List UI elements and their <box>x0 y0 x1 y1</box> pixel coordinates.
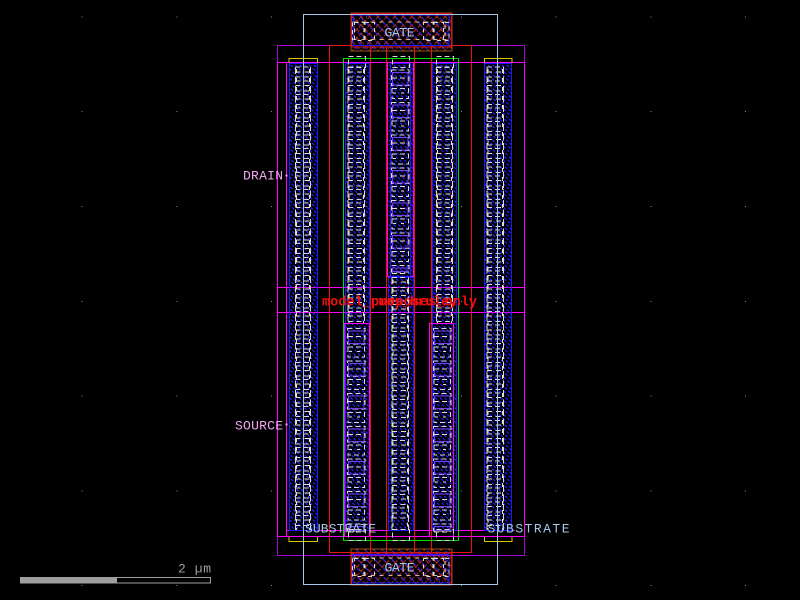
svg-text:GATE: GATE <box>385 561 415 576</box>
svg-text:pmos_bruley: pmos_bruley <box>371 296 457 311</box>
svg-text:SUBSTRATE: SUBSTRATE <box>305 522 376 537</box>
svg-text:DRAIN: DRAIN <box>243 169 283 184</box>
svg-text:GATE: GATE <box>385 26 415 41</box>
svg-text:2 µm: 2 µm <box>178 562 211 577</box>
svg-text:SUBSTRATE: SUBSTRATE <box>488 522 570 537</box>
svg-text:SOURCE: SOURCE <box>235 419 283 434</box>
